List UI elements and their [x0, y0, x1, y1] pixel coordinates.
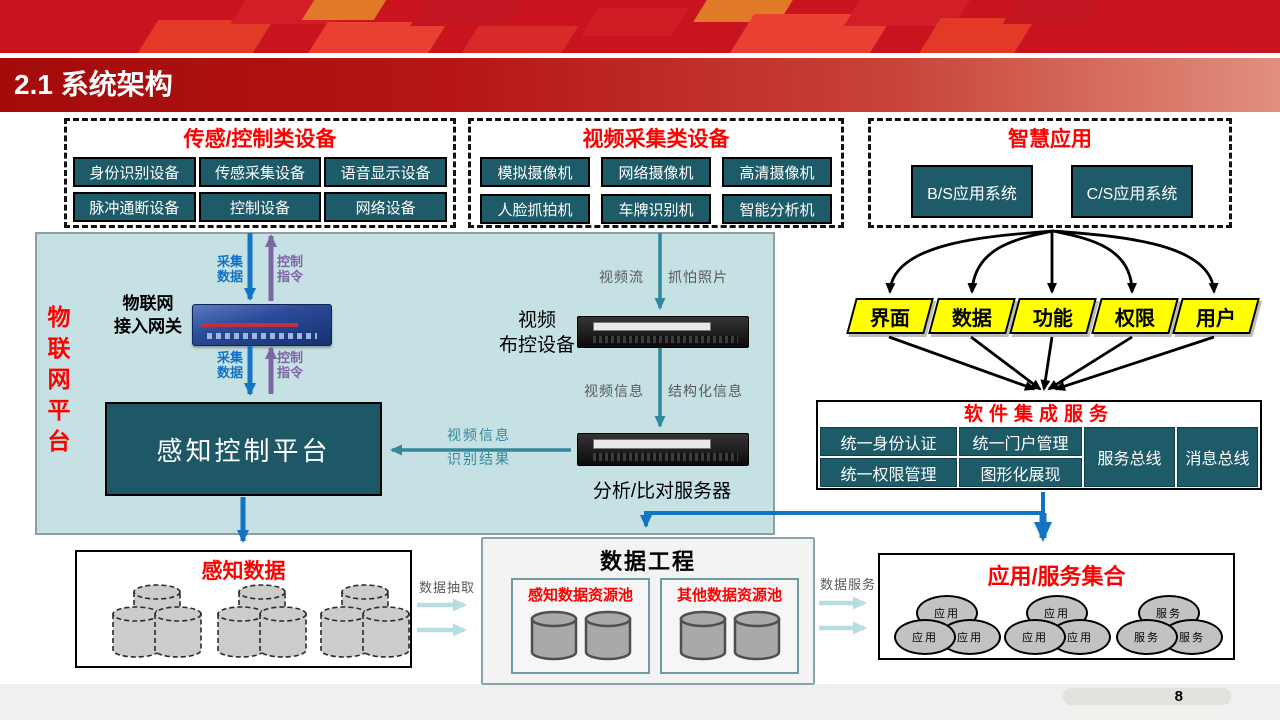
iot-gateway-label: 物联网 接入网关: [92, 292, 204, 338]
banner-pattern: [462, 26, 579, 53]
page-number: 8: [1063, 688, 1231, 705]
other-data-pool: 其他数据资源池: [660, 578, 799, 674]
page-number-bar: 8: [1063, 688, 1231, 705]
app-service-title: 应用/服务集合: [880, 559, 1233, 591]
aspect-user: 用户: [1172, 298, 1260, 334]
device-item: 车牌识别机: [601, 194, 711, 224]
flow-label-data-extract: 数据抽取: [419, 580, 475, 595]
page-title: 2.1 系统架构: [0, 58, 1280, 112]
banner-pattern: [410, 0, 521, 26]
app-cluster: 应用 应用 应用: [894, 595, 1002, 657]
banner-pattern: [581, 8, 688, 36]
video-server-image: [577, 316, 749, 348]
message-bus-cell: 消息总线: [1177, 427, 1258, 487]
analysis-server-image: [577, 433, 749, 466]
flow-label-collect-data: 采集 数据: [212, 254, 248, 284]
flow-label-control-command: 控制 指令: [272, 350, 308, 380]
top-banner: [0, 0, 1280, 53]
sensor-group-title: 传感/控制类设备: [67, 125, 453, 157]
arrow-converge-5: [1056, 337, 1214, 389]
banner-pattern: [1003, 0, 1098, 24]
flow-label-video-info: 视频信息: [582, 384, 644, 399]
aspect-label: 界面: [870, 302, 910, 331]
flow-label-data-service: 数据服务: [820, 577, 876, 592]
device-item: 人脸抓拍机: [480, 194, 590, 224]
device-item: 模拟摄像机: [480, 157, 590, 187]
smart-app-title: 智慧应用: [871, 125, 1229, 157]
flow-label-recognition-result: 识别结果: [447, 452, 511, 467]
analysis-server-label: 分析/比对服务器: [562, 476, 762, 503]
pool-cylinders-image: [674, 608, 786, 662]
data-engineering-box: 数据工程 感知数据资源池 其他数据资源池: [481, 537, 815, 685]
aspect-function: 功能: [1009, 298, 1097, 334]
arrow-converge-2: [971, 337, 1040, 389]
app-service-collection-box: 应用/服务集合 应用 应用 应用 应用 应用 应用 服务 服务 服务: [878, 553, 1235, 660]
integration-cell: 图形化展现: [959, 458, 1082, 487]
device-item: 语音显示设备: [324, 157, 447, 187]
service-ellipse: 服务: [1116, 619, 1178, 655]
aspect-label: 数据: [952, 302, 992, 331]
slide: 2.1 系统架构 传感/控制类设备 身份识别设备 传感采集设备 语音显示设备 脉…: [0, 0, 1280, 720]
iot-gateway-device-image: [192, 304, 332, 346]
aspect-label: 权限: [1115, 302, 1155, 331]
app-cluster: 应用 应用 应用: [1004, 595, 1112, 657]
aspect-interface: 界面: [846, 298, 934, 334]
smart-app-group: 智慧应用 B/S应用系统 C/S应用系统: [868, 118, 1232, 228]
service-cluster: 服务 服务 服务: [1116, 595, 1224, 657]
software-integration-title: 软件集成服务: [818, 402, 1260, 427]
device-item: 传感采集设备: [199, 157, 322, 187]
device-item: 网络设备: [324, 192, 447, 222]
flow-label-control-command: 控制 指令: [272, 254, 308, 284]
flow-label-video-stream: 视频流: [592, 270, 644, 285]
server-vents: [593, 336, 738, 344]
arrow-fan-data: [972, 231, 1053, 292]
pool-cylinders-image: [525, 608, 637, 662]
software-integration-grid: 统一身份认证 统一门户管理 服务总线 消息总线 统一权限管理 图形化展现: [818, 427, 1260, 489]
perception-control-platform: 感知控制平台: [105, 402, 382, 496]
server-vents: [593, 453, 738, 461]
arrow-fan-permission: [1053, 231, 1132, 292]
gateway-stripe: [201, 323, 298, 327]
integration-cell: 统一门户管理: [959, 427, 1082, 456]
banner-pattern: [302, 0, 386, 20]
database-cluster-image: [315, 578, 415, 662]
flow-label-video-info-2: 视频信息: [447, 428, 511, 443]
bs-app-system: B/S应用系统: [911, 165, 1033, 218]
data-engineering-title: 数据工程: [483, 544, 813, 576]
aspect-label: 功能: [1033, 302, 1073, 331]
device-item: 网络摄像机: [601, 157, 711, 187]
database-cluster-image: [212, 578, 312, 662]
cs-app-system: C/S应用系统: [1071, 165, 1193, 218]
iot-platform-side-label: 物联网平台: [46, 302, 72, 457]
banner-pattern: [308, 22, 447, 53]
aspect-permission: 权限: [1091, 298, 1179, 334]
gateway-ports: [207, 333, 317, 339]
arrow-converge-4: [1049, 337, 1132, 389]
perception-data-pool: 感知数据资源池: [511, 578, 650, 674]
integration-cell: 统一权限管理: [820, 458, 957, 487]
iot-platform-box: 物联网平台 物联网 接入网关 感知控制平台 视频 布控设备 分析/比对服务器: [35, 232, 775, 535]
server-slot: [593, 439, 710, 449]
server-slot: [593, 322, 710, 332]
app-ellipse: 应用: [1004, 619, 1066, 655]
device-item: 脉冲通断设备: [73, 192, 196, 222]
integration-cell: 统一身份认证: [820, 427, 957, 456]
database-cluster-image: [107, 578, 207, 662]
video-group-title: 视频采集类设备: [471, 125, 841, 157]
device-item: 身份识别设备: [73, 157, 196, 187]
service-bus-cell: 服务总线: [1084, 427, 1175, 487]
device-item: 高清摄像机: [722, 157, 832, 187]
software-integration-box: 软件集成服务 统一身份认证 统一门户管理 服务总线 消息总线 统一权限管理 图形…: [816, 400, 1262, 490]
aspect-label: 用户: [1196, 302, 1236, 331]
aspect-data: 数据: [928, 298, 1016, 334]
pool-label: 其他数据资源池: [662, 584, 797, 605]
app-ellipse: 应用: [894, 619, 956, 655]
device-item: 智能分析机: [722, 194, 832, 224]
sensor-devices-group: 传感/控制类设备 身份识别设备 传感采集设备 语音显示设备 脉冲通断设备 控制设…: [64, 118, 456, 228]
pool-label: 感知数据资源池: [513, 584, 648, 605]
arrow-converge-3: [1044, 337, 1052, 389]
arrow-fan-interface: [890, 231, 1053, 292]
banner-pattern: [138, 20, 274, 53]
flow-label-collect-data: 采集 数据: [212, 350, 248, 380]
video-devices-group: 视频采集类设备 模拟摄像机 网络摄像机 高清摄像机 人脸抓拍机 车牌识别机 智能…: [468, 118, 844, 228]
device-item: 控制设备: [199, 192, 322, 222]
sensor-items-grid: 身份识别设备 传感采集设备 语音显示设备 脉冲通断设备 控制设备 网络设备: [67, 157, 453, 222]
title-bar: 2.1 系统架构: [0, 58, 1280, 112]
flow-label-structured-info: 结构化信息: [668, 384, 743, 399]
video-items-grid: 模拟摄像机 网络摄像机 高清摄像机 人脸抓拍机 车牌识别机 智能分析机: [471, 157, 841, 224]
arrow-fan-user: [1053, 231, 1214, 292]
perception-data-box: 感知数据: [75, 550, 412, 668]
flow-label-capture-photo: 抓怕照片: [668, 270, 728, 285]
arrow-converge-1: [889, 337, 1034, 389]
